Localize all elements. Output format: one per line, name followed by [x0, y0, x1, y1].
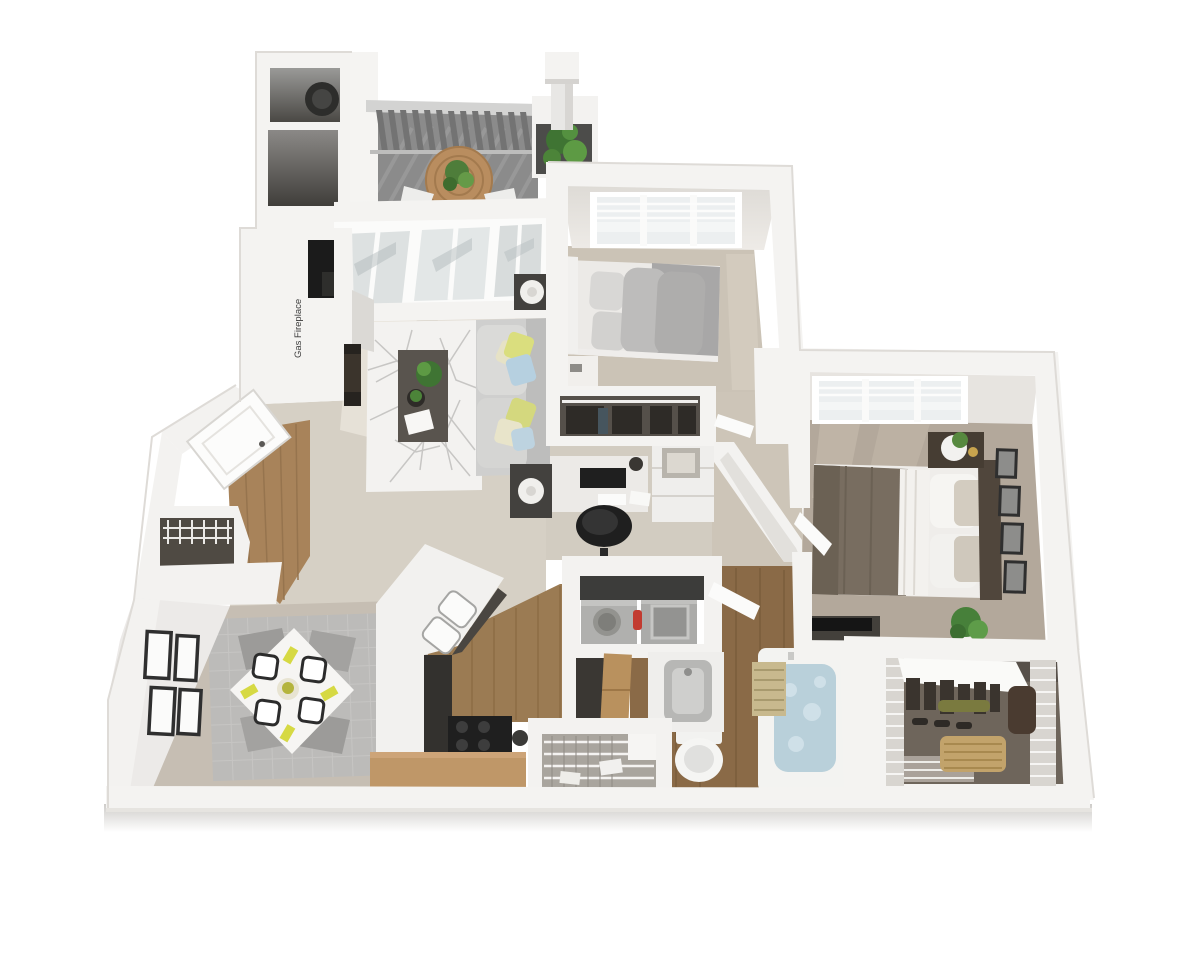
- svg-text:Gas Fireplace: Gas Fireplace: [293, 299, 304, 358]
